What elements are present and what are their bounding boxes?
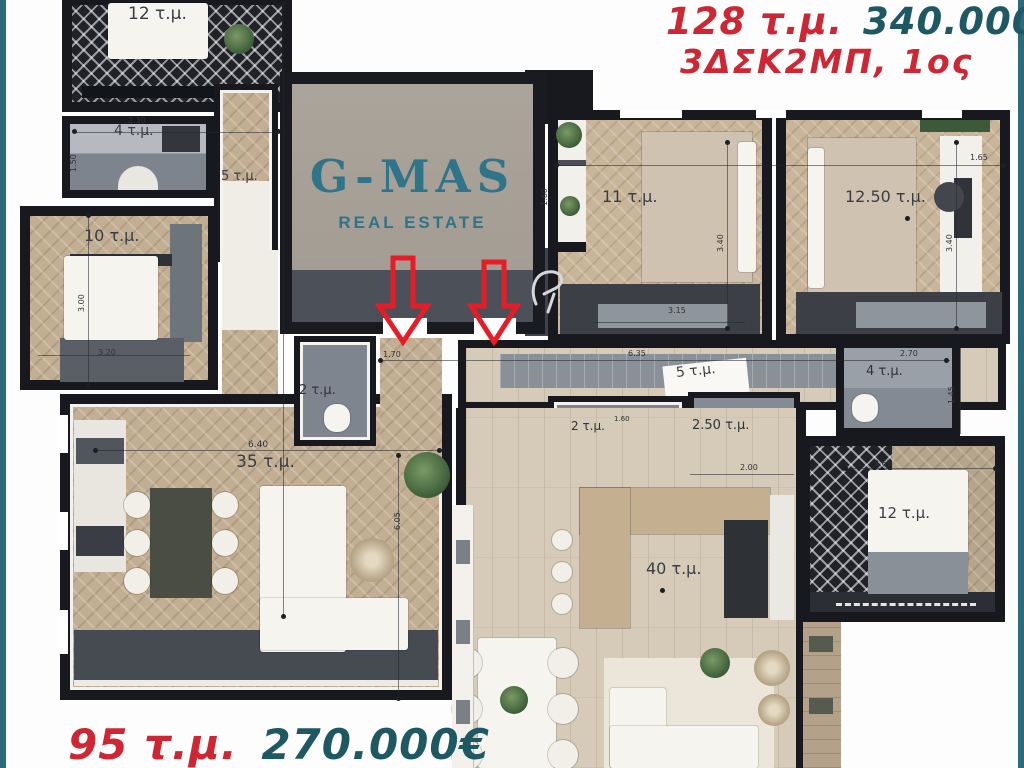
dim-line <box>960 348 961 434</box>
toilet <box>852 394 878 422</box>
logo-floor-band <box>292 270 533 322</box>
frame-right <box>1018 0 1024 768</box>
room-label: 12 τ.μ. <box>128 6 187 23</box>
planter <box>456 620 470 644</box>
balcony-strip <box>798 622 841 768</box>
floor-shadow <box>810 592 995 612</box>
dim-label: 2.70 <box>900 350 918 358</box>
dim-label: 3.40 <box>717 234 725 252</box>
listing-top-line1: 128 τ.μ. 340.000€ <box>666 0 1024 43</box>
dim-label: 2.00 <box>740 464 758 472</box>
plant-icon <box>224 24 254 54</box>
bench <box>856 302 986 328</box>
floorplan-image: G-MAS REAL ESTATE <box>0 0 1024 768</box>
logo-box: G-MAS REAL ESTATE <box>280 72 545 334</box>
balcony-wall <box>558 242 586 252</box>
hall-floor <box>223 93 269 181</box>
dim-label: 6.05 <box>394 512 402 530</box>
curtain <box>836 603 976 606</box>
window <box>922 110 962 118</box>
room-bath-4-right <box>836 340 960 436</box>
door-gap <box>474 318 516 338</box>
bench <box>598 304 728 328</box>
brand-tagline: REAL ESTATE <box>292 213 533 233</box>
room-label: 2 τ.μ. <box>571 420 605 432</box>
dim-label: 1.45 <box>948 386 956 404</box>
dim-line <box>95 450 441 451</box>
dim-label: 3.00 <box>78 294 86 312</box>
dim-line <box>380 360 950 361</box>
room-label: 2 τ.μ. <box>299 384 336 397</box>
appliance <box>76 526 124 556</box>
dim-line <box>556 165 1006 166</box>
console <box>82 86 232 98</box>
chair <box>124 492 150 518</box>
brand-name: G-MAS <box>292 150 533 203</box>
stool <box>552 594 572 614</box>
dim-line <box>74 132 280 133</box>
room-label: 4 τ.μ. <box>114 124 154 138</box>
chair <box>212 492 238 518</box>
dim-label: 3.65 <box>874 460 892 468</box>
frame-left <box>0 0 6 768</box>
dim-label: 3.15 <box>668 307 686 315</box>
planter <box>456 540 470 564</box>
pillows <box>808 148 824 288</box>
chair <box>548 740 578 768</box>
dim-line <box>727 142 728 330</box>
window <box>620 110 682 118</box>
dim-label: 3.20 <box>98 349 116 357</box>
planter <box>809 698 833 714</box>
window <box>58 512 68 550</box>
coffee-table <box>350 538 394 582</box>
window <box>756 110 786 118</box>
window <box>58 610 68 654</box>
fridge <box>770 495 794 620</box>
room-bedroom-1250 <box>776 110 1010 344</box>
listing-top-area: 128 τ.μ. <box>666 0 843 43</box>
dim-label: 6.35 <box>628 350 646 358</box>
chair <box>124 530 150 556</box>
plant-icon <box>404 452 450 498</box>
room-label: 5 τ.μ. <box>221 170 258 183</box>
dim-line <box>595 322 745 323</box>
dim-line <box>956 142 957 330</box>
listing-bottom-price: 270.000€ <box>261 720 490 768</box>
rattan-chair <box>758 694 790 726</box>
dim-line <box>690 474 794 475</box>
chair <box>548 648 578 678</box>
window <box>58 415 68 453</box>
plant-icon <box>700 648 730 678</box>
chair <box>548 694 578 724</box>
terrace-sill <box>74 680 438 686</box>
room-bedroom-11 <box>548 110 772 344</box>
room-label: 11 τ.μ. <box>602 189 657 205</box>
door-gap <box>383 318 427 338</box>
appliance <box>76 438 124 464</box>
toilet <box>324 404 350 432</box>
dim-line <box>398 455 399 700</box>
room-label: 10 τ.μ. <box>84 228 139 244</box>
brand: G-MAS REAL ESTATE <box>292 150 533 233</box>
room-label: 12 τ.μ. <box>878 506 930 521</box>
dim-line <box>283 2 284 618</box>
stool <box>552 562 572 582</box>
plant-icon <box>500 686 528 714</box>
room-label: 5 τ.μ. <box>675 362 716 380</box>
dim-label: 3.40 <box>946 234 954 252</box>
bed <box>808 138 916 300</box>
room-label: 2.50 τ.μ. <box>692 419 749 432</box>
planter <box>809 636 833 652</box>
dim-line <box>845 468 997 469</box>
room-label: 35 τ.μ. <box>236 454 295 471</box>
chair <box>212 530 238 556</box>
room-label: 40 τ.μ. <box>646 561 701 577</box>
appliance-column <box>724 520 768 618</box>
dining-table <box>150 488 212 598</box>
listing-bottom-line: 95 τ.μ. 270.000€ <box>68 720 490 768</box>
room-label: 4 τ.μ. <box>866 365 903 378</box>
stool <box>552 530 572 550</box>
plant-icon <box>560 196 580 216</box>
dim-label: 1.60 <box>541 188 549 206</box>
dim-label: 6.40 <box>248 441 268 450</box>
listing-top-line2: 3ΔΣΚ2ΜΠ, 1ος <box>680 42 973 81</box>
pillows <box>738 142 756 272</box>
wardrobe <box>170 224 202 342</box>
rattan-chair <box>754 650 790 686</box>
rug-shadow <box>60 338 184 382</box>
blanket <box>868 552 968 594</box>
dim-label: 1.65 <box>970 154 988 162</box>
hall-bridge <box>222 250 278 330</box>
dim-label: 1.50 <box>70 154 78 172</box>
listing-top-price: 340.000€ <box>863 0 1024 43</box>
dim-label: 1.60 <box>614 416 630 423</box>
plant-icon <box>556 122 582 148</box>
bed <box>642 132 752 282</box>
hedge <box>920 120 990 132</box>
room-label: 12.50 τ.μ. <box>845 189 926 205</box>
kitchen-counter <box>580 488 630 628</box>
chair <box>212 568 238 594</box>
desk-chair <box>934 182 964 212</box>
listing-bottom-area: 95 τ.μ. <box>68 720 238 768</box>
chair <box>124 568 150 594</box>
sofa <box>610 726 758 768</box>
dim-label: 1.70 <box>383 351 401 359</box>
door-arc <box>118 166 158 190</box>
shower <box>162 126 200 152</box>
